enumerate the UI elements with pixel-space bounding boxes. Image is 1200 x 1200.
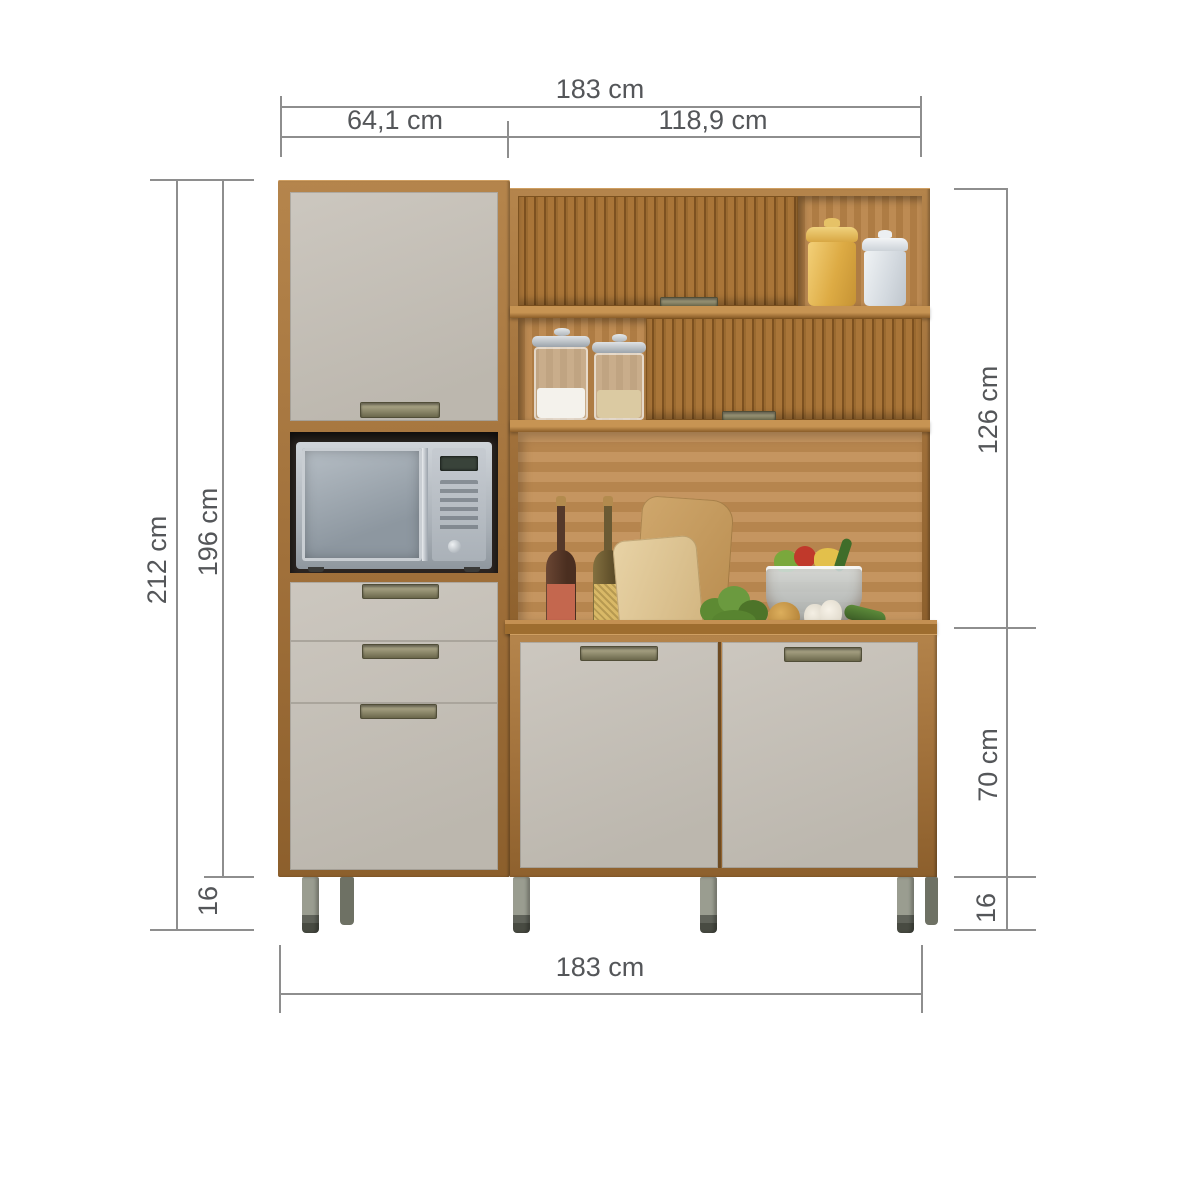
bottle-neck <box>557 506 565 554</box>
white-canister <box>864 230 906 306</box>
canister-knob <box>878 230 892 238</box>
base-door-right-handle <box>784 647 862 662</box>
dim-bottom-total-line <box>280 993 922 995</box>
back-leg-1 <box>340 877 354 925</box>
dim-top-left-label: 64,1 cm <box>300 105 490 135</box>
front-leg-1 <box>302 877 319 933</box>
jar-lid <box>592 342 646 353</box>
base-door-gap <box>718 642 721 868</box>
microwave-control-panel <box>432 448 486 561</box>
dim-right-lower-label: 70 cm <box>973 695 1003 835</box>
left-drawer-stack <box>290 582 498 870</box>
dim-tick <box>280 96 282 157</box>
canister-lid <box>862 238 908 251</box>
countertop <box>505 620 937 634</box>
base-door-left-handle <box>580 646 658 661</box>
dim-tick <box>507 121 509 158</box>
microwave-door-handle <box>422 448 428 561</box>
jar-grain-content <box>597 390 641 418</box>
tambour-door-lower <box>646 318 922 420</box>
yellow-canister <box>808 218 856 306</box>
dim-tick <box>954 188 1008 190</box>
dim-tick <box>279 945 281 1013</box>
hutch-shelf-2 <box>510 420 930 432</box>
front-leg-2 <box>513 877 530 933</box>
microwave-display <box>440 456 478 471</box>
back-leg-2 <box>925 877 938 925</box>
tambour-door-upper <box>518 196 798 306</box>
base-door-right <box>722 642 918 868</box>
dim-left-body-label: 196 cm <box>193 462 223 602</box>
bottle-red-label <box>544 496 578 632</box>
microwave-foot <box>464 567 480 572</box>
drawer-divider <box>290 640 498 642</box>
canister-lid <box>806 227 858 242</box>
dim-left-total-label: 212 cm <box>142 490 172 630</box>
dim-left-feet-label: 16 <box>193 871 223 931</box>
cabinet-left-column <box>278 180 510 877</box>
hutch-shelf-1 <box>510 306 930 318</box>
glass-jar-grains <box>594 334 644 420</box>
dim-right-upper-label: 126 cm <box>973 340 1003 480</box>
dim-top-right-label: 118,9 cm <box>618 105 808 135</box>
microwave-dial <box>448 540 461 553</box>
base-door-left <box>520 642 718 868</box>
dim-top-sections-line <box>281 136 921 138</box>
upper-left-door <box>290 192 498 421</box>
glass-jar-salt <box>534 328 588 420</box>
tomato <box>794 546 816 568</box>
canister-body <box>808 242 856 306</box>
front-leg-4 <box>897 877 914 933</box>
canister-body <box>864 251 906 306</box>
dim-tick <box>150 179 254 181</box>
drawer-1-handle <box>362 584 439 599</box>
dim-top-total-label: 183 cm <box>470 74 730 104</box>
base-cabinet <box>510 634 937 877</box>
lower-left-door-handle <box>360 704 437 719</box>
microwave-door <box>302 448 422 561</box>
dim-tick <box>921 945 923 1013</box>
jar-knob <box>612 334 627 342</box>
microwave <box>296 442 492 569</box>
product-dimension-diagram: 183 cm 64,1 cm 118,9 cm 212 cm 196 cm 16… <box>0 0 1200 1200</box>
microwave-niche <box>290 432 498 573</box>
drawer-2-handle <box>362 644 439 659</box>
dim-bottom-total-label: 183 cm <box>470 952 730 982</box>
dim-right-line <box>1006 189 1008 931</box>
front-leg-3 <box>700 877 717 933</box>
upper-left-door-handle <box>360 402 440 418</box>
jar-knob <box>554 328 570 336</box>
dim-tick <box>954 627 1036 629</box>
dim-left-total-line <box>176 180 178 931</box>
dim-tick <box>920 96 922 157</box>
canister-knob <box>824 218 840 227</box>
bottle-neck <box>604 506 612 554</box>
microwave-foot <box>308 567 324 572</box>
jar-salt-content <box>537 388 585 418</box>
dim-right-feet-label: 16 <box>971 878 1001 938</box>
microwave-keypad <box>440 480 478 532</box>
bottle-label <box>547 584 575 624</box>
jar-lid <box>532 336 590 347</box>
